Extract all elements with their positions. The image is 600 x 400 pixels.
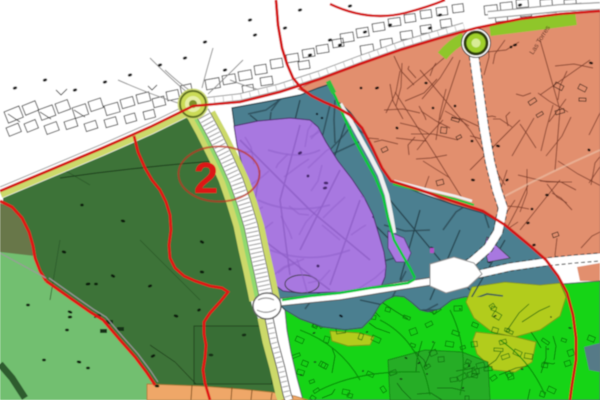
svg-text:2: 2: [194, 154, 218, 203]
